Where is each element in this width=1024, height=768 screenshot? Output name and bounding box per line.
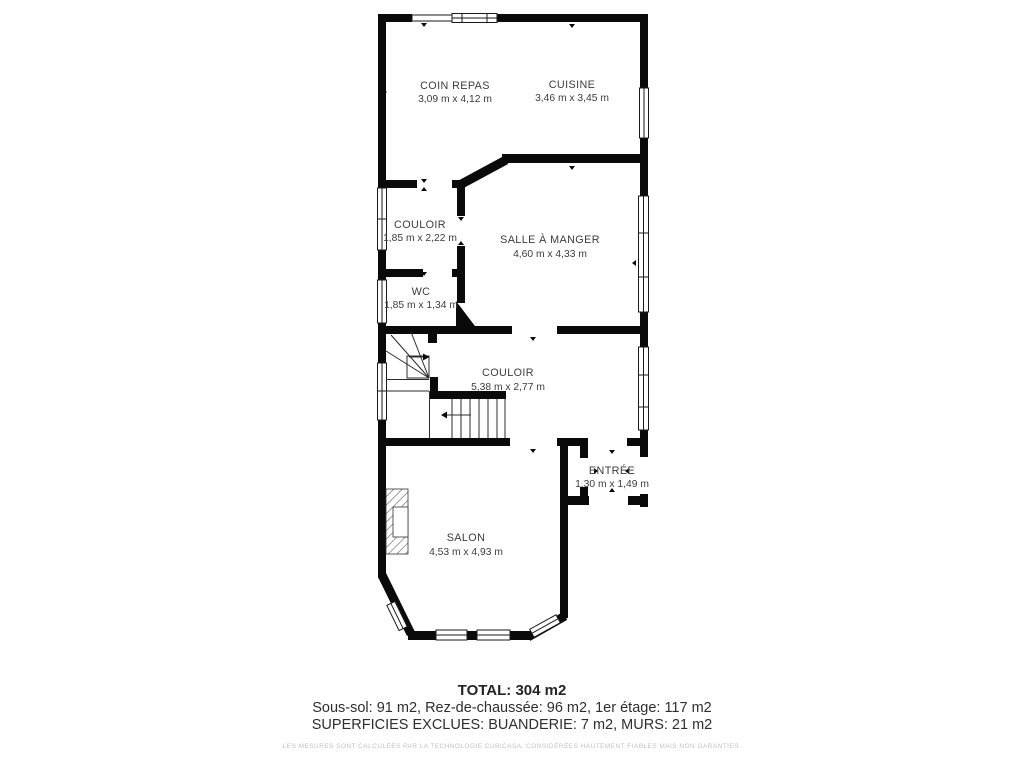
walls — [378, 14, 648, 640]
window-right-dining — [639, 196, 649, 312]
room-dims-couloir: 5,38 m x 2,77 m — [471, 382, 545, 393]
excluded-areas: SUPERFICIES EXCLUES: BUANDERIE: 7 m2, MU… — [0, 717, 1024, 734]
wall-segment — [560, 446, 568, 618]
room-name-salle-a-manger: SALLE À MANGER — [500, 233, 600, 246]
room-name-salon: SALON — [447, 532, 486, 544]
wall-segment — [408, 631, 530, 640]
room-name-cuisine: CUISINE — [549, 79, 596, 91]
window-top-opening — [412, 15, 452, 21]
wall-segment — [428, 332, 437, 343]
room-dims-salon: 4,53 m x 4,93 m — [429, 547, 503, 558]
room-name-couloir: COULOIR — [482, 367, 534, 379]
room-dims-salle-a-manger: 4,60 m x 4,33 m — [513, 249, 587, 260]
bay-window-bottom-1 — [436, 630, 467, 640]
wall-segment — [497, 14, 648, 22]
bay-window-bottom-2 — [477, 630, 510, 640]
room-dims-entree: 1,30 m x 1,49 m — [575, 479, 649, 490]
wall-segment — [563, 496, 589, 505]
room-dims-couloir-haut: 1,85 m x 2,22 m — [383, 233, 457, 244]
room-dims-coin-repas: 3,09 m x 4,12 m — [418, 94, 492, 105]
wall-segment — [627, 438, 648, 446]
wall-segment — [628, 496, 648, 505]
wall-segment — [430, 391, 451, 399]
room-name-coin-repas: COIN REPAS — [420, 80, 490, 92]
wall-segment — [580, 438, 588, 458]
wall-segment — [502, 154, 648, 163]
fireplace — [386, 489, 408, 554]
floor-areas: Sous-sol: 91 m2, Rez-de-chaussée: 96 m2,… — [0, 700, 1024, 717]
measurement-disclaimer: LES MESURES SONT CALCULÉES PAR LA TECHNO… — [0, 743, 1024, 750]
wall-segment — [452, 269, 465, 277]
wall-segment — [378, 438, 510, 446]
window-top — [452, 14, 497, 23]
room-name-couloir-haut: COULOIR — [394, 219, 446, 231]
window-right-kitchen — [640, 88, 649, 138]
total-area: TOTAL: 304 m2 — [0, 682, 1024, 700]
room-name-entree: ENTRÉE — [589, 464, 635, 477]
window-left-hall — [378, 363, 387, 420]
floorplan-drawing: COIN REPAS 3,09 m x 4,12 m CUISINE 3,46 … — [0, 0, 1024, 768]
floorplan-page: COIN REPAS 3,09 m x 4,12 m CUISINE 3,46 … — [0, 0, 1024, 768]
room-dims-wc: 1,85 m x 1,34 m — [384, 300, 458, 311]
wall-segment — [378, 326, 512, 334]
room-dims-cuisine: 3,46 m x 3,45 m — [535, 93, 609, 104]
area-summary: TOTAL: 304 m2 Sous-sol: 91 m2, Rez-de-ch… — [0, 682, 1024, 750]
window-right-hall — [639, 347, 649, 430]
stair-arrow-down-icon — [441, 412, 471, 419]
wall-segment — [378, 269, 423, 277]
room-labels: COIN REPAS 3,09 m x 4,12 m CUISINE 3,46 … — [383, 79, 649, 558]
room-name-wc: WC — [412, 286, 431, 298]
wall-diagonal — [456, 160, 506, 187]
wall-segment — [378, 180, 417, 188]
wall-segment — [557, 326, 648, 334]
